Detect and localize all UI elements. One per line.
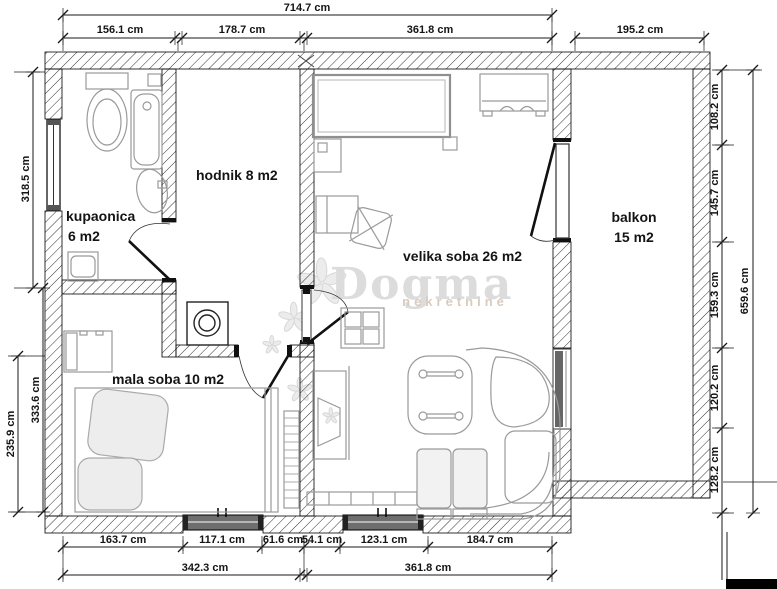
floor-plan-drawing: Dogma nekretnine xyxy=(0,0,777,589)
door-jamb xyxy=(162,218,176,222)
door-jamb xyxy=(553,138,571,142)
window-cap xyxy=(418,515,423,530)
sofa-seat xyxy=(453,449,487,508)
dim-right-seg3: 159.3 cm xyxy=(709,272,721,319)
dim-top-seg1: 156.1 cm xyxy=(97,24,144,36)
door-jamb xyxy=(234,345,239,357)
edge-black-bar xyxy=(726,579,777,589)
label-livingroom: velika soba 26 m2 xyxy=(403,248,522,264)
watermark-subtitle: nekretnine xyxy=(402,294,508,309)
door-jamb xyxy=(287,345,292,357)
door-jamb xyxy=(553,238,571,242)
door-panel xyxy=(556,144,569,238)
dim-right-total: 659.6 cm xyxy=(739,268,751,315)
door-jamb xyxy=(300,285,314,289)
wall-left-upper xyxy=(45,69,62,119)
watermark-petal xyxy=(329,408,333,416)
window-balcony-wall xyxy=(553,349,571,429)
floor-plan: Dogma nekretnine xyxy=(0,0,777,589)
dim-left-inner: 333.6 cm xyxy=(30,377,42,424)
window-cap xyxy=(343,515,348,530)
dim-top-seg2: 178.7 cm xyxy=(219,24,266,36)
dim-top-seg3: 361.8 cm xyxy=(407,24,454,36)
dim-left-outer: 235.9 cm xyxy=(5,411,17,458)
misc-edge-elements xyxy=(726,579,777,589)
wall-left-lower xyxy=(45,211,62,516)
dim-right-seg5: 128.2 cm xyxy=(709,447,721,494)
window-cap xyxy=(258,515,263,530)
bed-cushion xyxy=(78,458,142,510)
dim-bottom-seg2: 117.1 cm xyxy=(199,534,245,546)
sofa-seat xyxy=(417,449,451,508)
wall-bottom-a xyxy=(45,516,183,533)
label-bathroom-area: 6 m2 xyxy=(68,228,100,244)
wall-bath-right-upper xyxy=(162,69,176,222)
bed-cushion xyxy=(86,388,169,463)
dim-bottom-total1: 342.3 cm xyxy=(182,562,229,574)
watermark-petal xyxy=(316,258,327,282)
dim-left-upper: 318.5 cm xyxy=(20,156,32,203)
wall-balcony-right xyxy=(693,69,710,498)
window-cap xyxy=(47,120,60,125)
wall-bottom-b xyxy=(263,516,343,533)
dim-top-balcony: 195.2 cm xyxy=(617,24,664,36)
wall-hall-livingroom-a xyxy=(300,69,314,287)
wall-balcony-bottom xyxy=(553,481,710,498)
label-hall: hodnik 8 m2 xyxy=(196,167,278,183)
label-balcony: balkon xyxy=(611,209,656,225)
window-cap xyxy=(183,515,188,530)
door-hinge xyxy=(303,289,310,294)
dim-right-seg4: 120.2 cm xyxy=(709,365,721,412)
dim-top-total: 714.7 cm xyxy=(284,2,331,14)
label-bathroom: kupaonica xyxy=(66,208,135,224)
wall-bath-bottom xyxy=(62,280,176,294)
wall-divider-b xyxy=(553,242,571,348)
watermark-petal xyxy=(270,335,274,344)
window-bathroom-left xyxy=(47,120,60,210)
watermark-petal xyxy=(290,302,297,317)
door-panel xyxy=(302,290,311,342)
dim-bottom-seg1: 163.7 cm xyxy=(100,534,147,546)
window-cap xyxy=(47,205,60,210)
wall-top xyxy=(45,52,710,69)
dim-right-seg2: 145.7 cm xyxy=(709,170,721,217)
label-balcony-area: 15 m2 xyxy=(614,229,654,245)
dim-bottom-seg6: 184.7 cm xyxy=(467,534,514,546)
dim-bottom-total2: 361.8 cm xyxy=(405,562,452,574)
dim-bottom-seg4: 54.1 cm xyxy=(302,534,343,546)
wall-hall-livingroom-b xyxy=(300,343,314,516)
wall-smallroom-top-a xyxy=(176,345,238,357)
wall-divider-a xyxy=(553,69,571,140)
dim-bottom-seg5: 123.1 cm xyxy=(361,534,408,546)
dim-right-seg1: 108.2 cm xyxy=(709,84,721,131)
label-smallroom: mala soba 10 m2 xyxy=(112,371,224,387)
dim-bottom-seg3: 61.6 cm xyxy=(263,534,304,546)
